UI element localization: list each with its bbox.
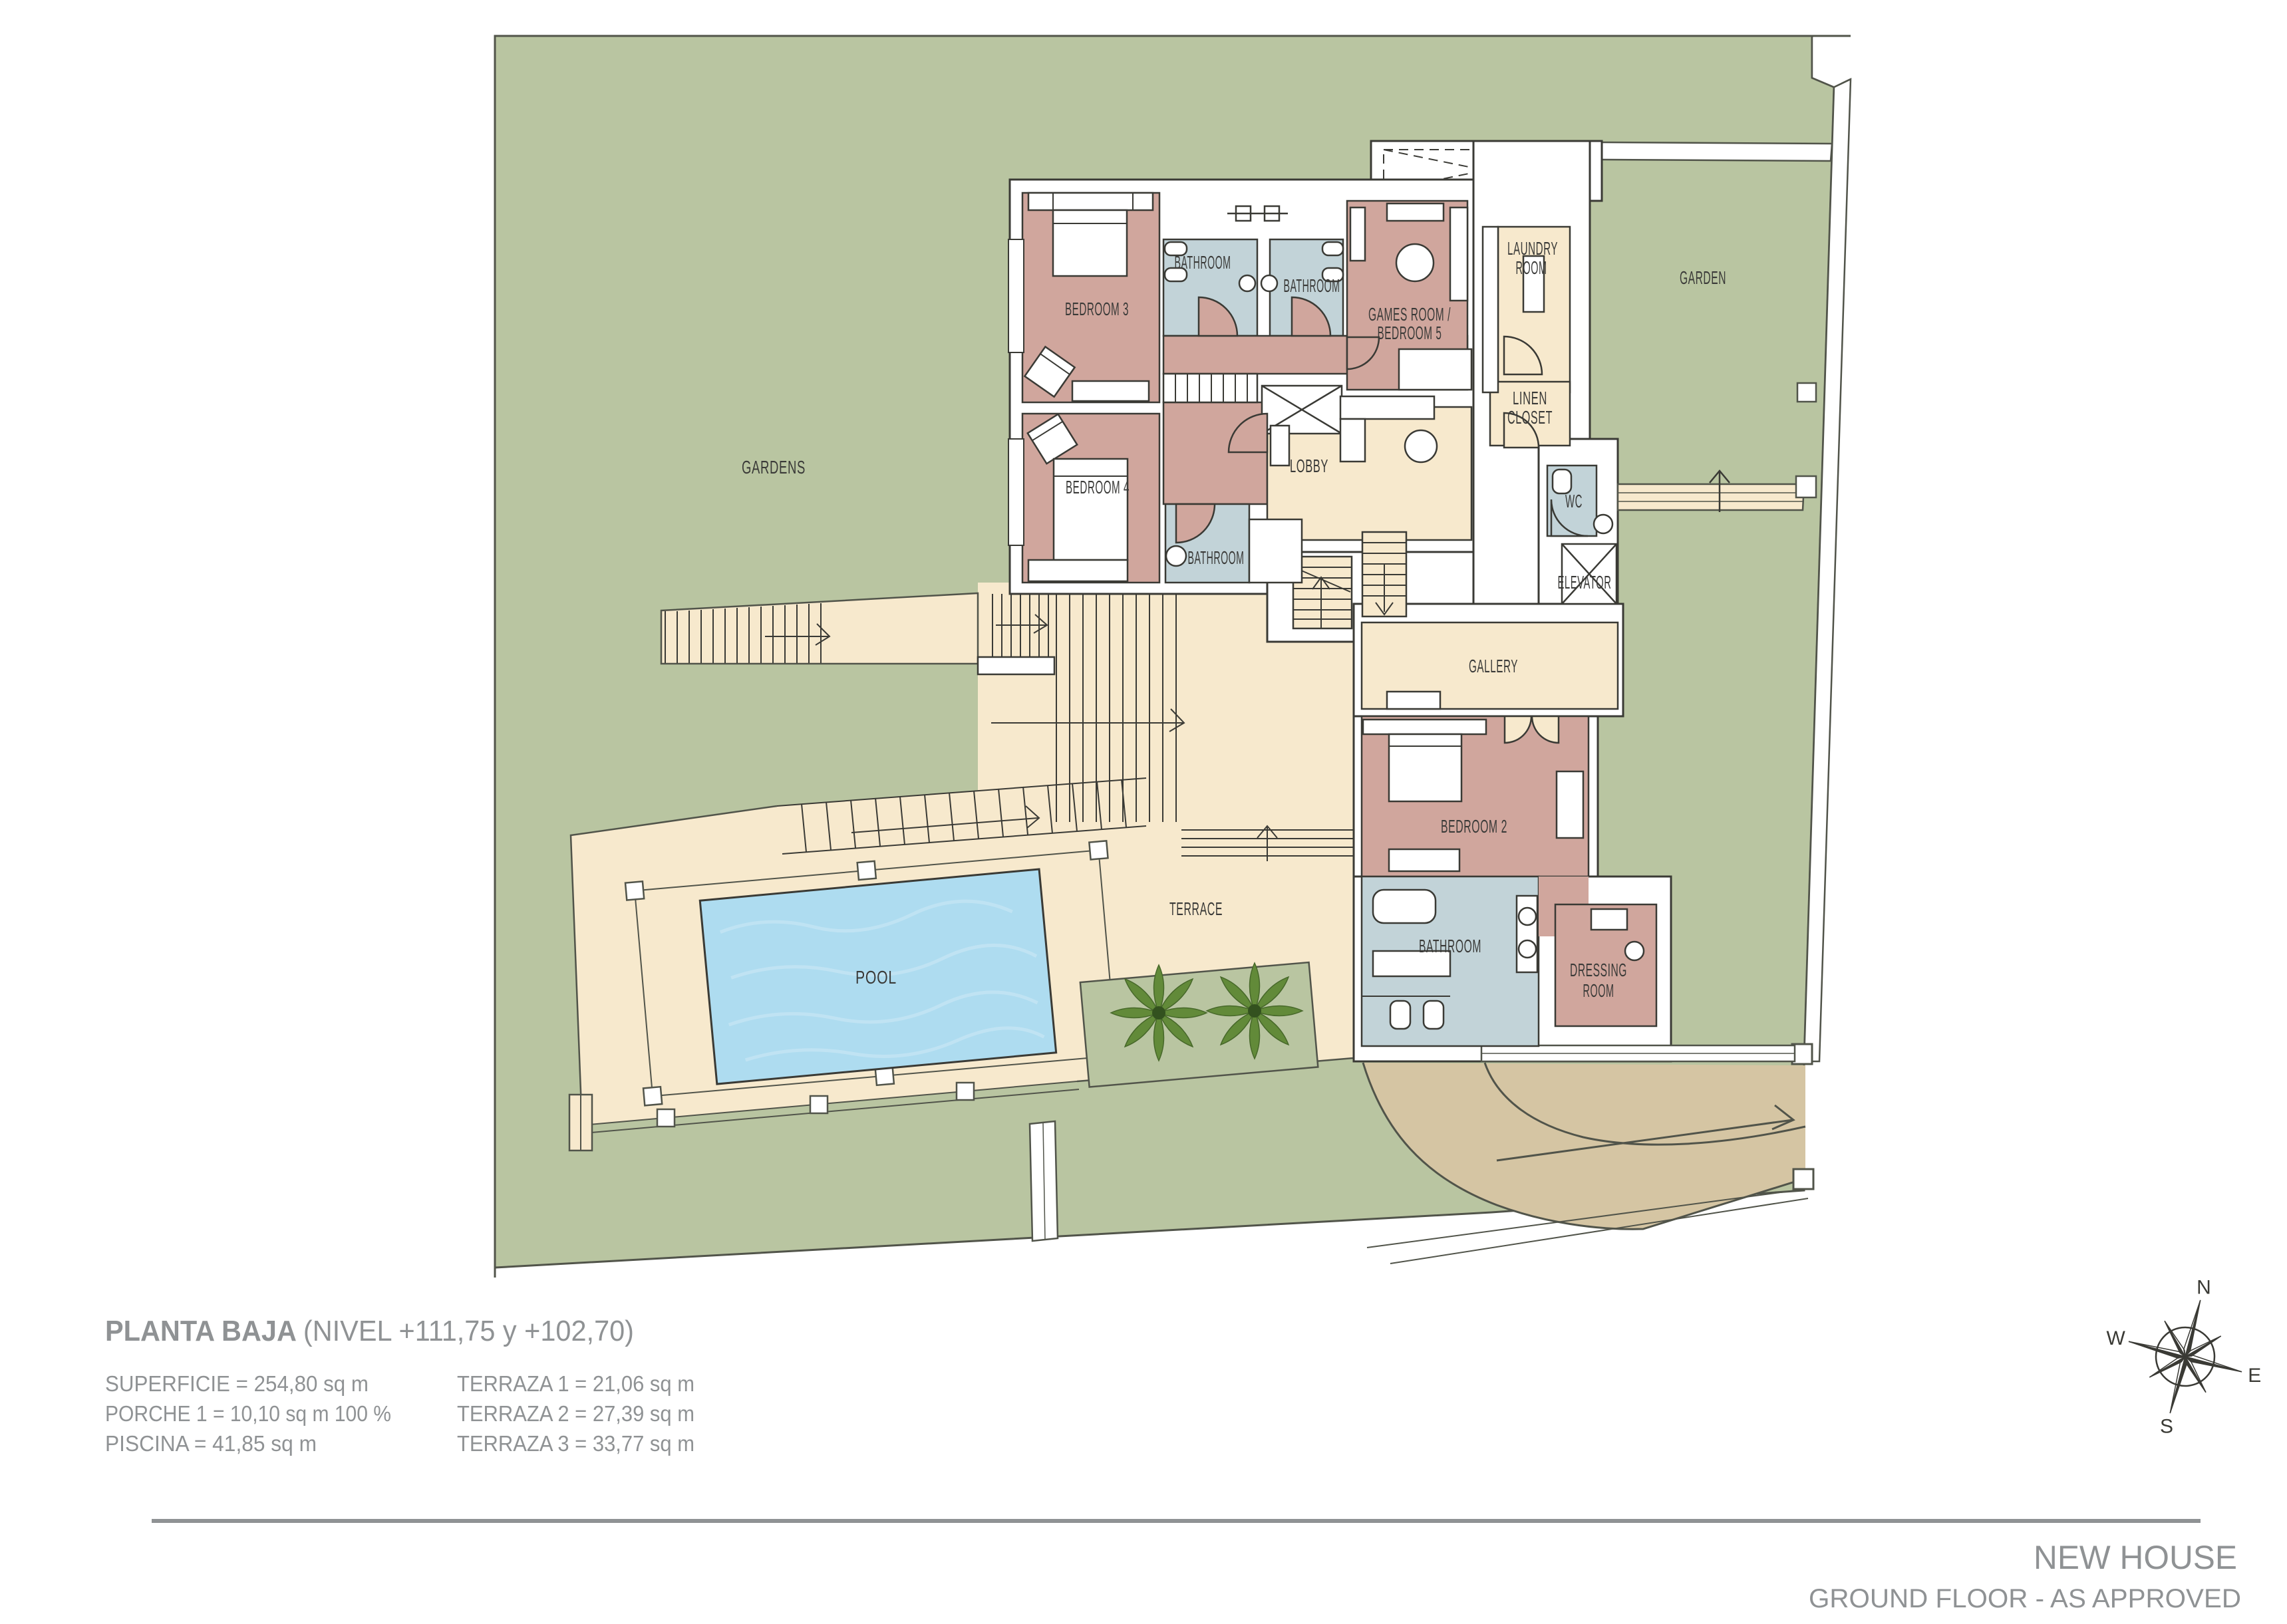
svg-text:LINEN: LINEN: [1513, 388, 1547, 408]
svg-text:BATHROOM: BATHROOM: [1419, 936, 1481, 956]
svg-text:ELEVATOR: ELEVATOR: [1558, 572, 1612, 593]
svg-text:CLOSET: CLOSET: [1507, 407, 1553, 428]
svg-text:S: S: [2160, 1415, 2173, 1437]
svg-text:GROUND FLOOR - AS APPROVED: GROUND FLOOR - AS APPROVED: [1809, 1584, 2241, 1613]
svg-text:PISCINA = 41,85 sq m: PISCINA = 41,85 sq m: [105, 1431, 317, 1456]
svg-text:BEDROOM 4: BEDROOM 4: [1066, 477, 1130, 497]
svg-text:ROOM: ROOM: [1583, 980, 1614, 1001]
svg-text:TERRAZA 1 = 21,06 sq m: TERRAZA 1 = 21,06 sq m: [457, 1371, 694, 1396]
svg-text:TERRACE: TERRACE: [1169, 898, 1223, 919]
svg-text:LOBBY: LOBBY: [1290, 456, 1328, 476]
svg-text:GARDENS: GARDENS: [742, 457, 806, 477]
svg-text:E: E: [2248, 1365, 2261, 1387]
svg-text:BEDROOM 3: BEDROOM 3: [1065, 299, 1129, 319]
svg-text:NEW HOUSE: NEW HOUSE: [2034, 1539, 2237, 1576]
svg-text:GARDEN: GARDEN: [1680, 267, 1726, 288]
svg-text:PLANTA BAJA (NIVEL +111,75 y +: PLANTA BAJA (NIVEL +111,75 y +102,70): [105, 1315, 634, 1347]
svg-text:ROOM: ROOM: [1516, 257, 1547, 278]
svg-text:GALLERY: GALLERY: [1469, 656, 1518, 676]
svg-text:SUPERFICIE = 254,80 sq m: SUPERFICIE = 254,80 sq m: [105, 1371, 369, 1396]
svg-text:WC: WC: [1565, 491, 1583, 511]
svg-text:BATHROOM: BATHROOM: [1188, 547, 1245, 568]
svg-text:POOL: POOL: [855, 967, 897, 988]
svg-text:W: W: [2107, 1327, 2126, 1349]
svg-text:PORCHE 1 = 10,10 sq m 100 %: PORCHE 1 = 10,10 sq m 100 %: [105, 1401, 391, 1426]
svg-text:N: N: [2197, 1277, 2211, 1299]
svg-text:TERRAZA 2 = 27,39 sq m: TERRAZA 2 = 27,39 sq m: [457, 1401, 694, 1426]
svg-text:GAMES ROOM /: GAMES ROOM /: [1368, 304, 1451, 325]
svg-text:LAUNDRY: LAUNDRY: [1507, 238, 1558, 259]
svg-text:BATHROOM: BATHROOM: [1175, 252, 1231, 273]
svg-text:BATHROOM: BATHROOM: [1284, 275, 1340, 296]
svg-text:TERRAZA 3 = 33,77 sq m: TERRAZA 3 = 33,77 sq m: [457, 1431, 694, 1456]
svg-text:DRESSING: DRESSING: [1570, 960, 1627, 980]
svg-text:BEDROOM 5: BEDROOM 5: [1378, 323, 1442, 343]
svg-text:BEDROOM 2: BEDROOM 2: [1441, 816, 1507, 837]
